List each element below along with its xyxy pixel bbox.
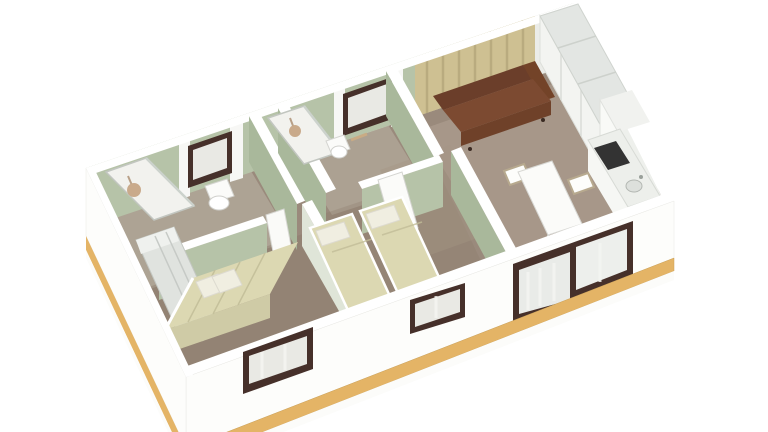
- shower-head: [289, 125, 301, 137]
- toilet-bowl: [331, 146, 347, 158]
- isometric-floorplan-svg: [0, 0, 768, 432]
- sofa-leg: [468, 147, 472, 151]
- shower-head: [127, 183, 141, 197]
- sink-basin: [626, 180, 642, 192]
- floorplan-render: [0, 0, 768, 432]
- sofa-leg: [541, 118, 545, 122]
- toilet-bowl: [209, 196, 229, 210]
- faucet: [639, 175, 643, 179]
